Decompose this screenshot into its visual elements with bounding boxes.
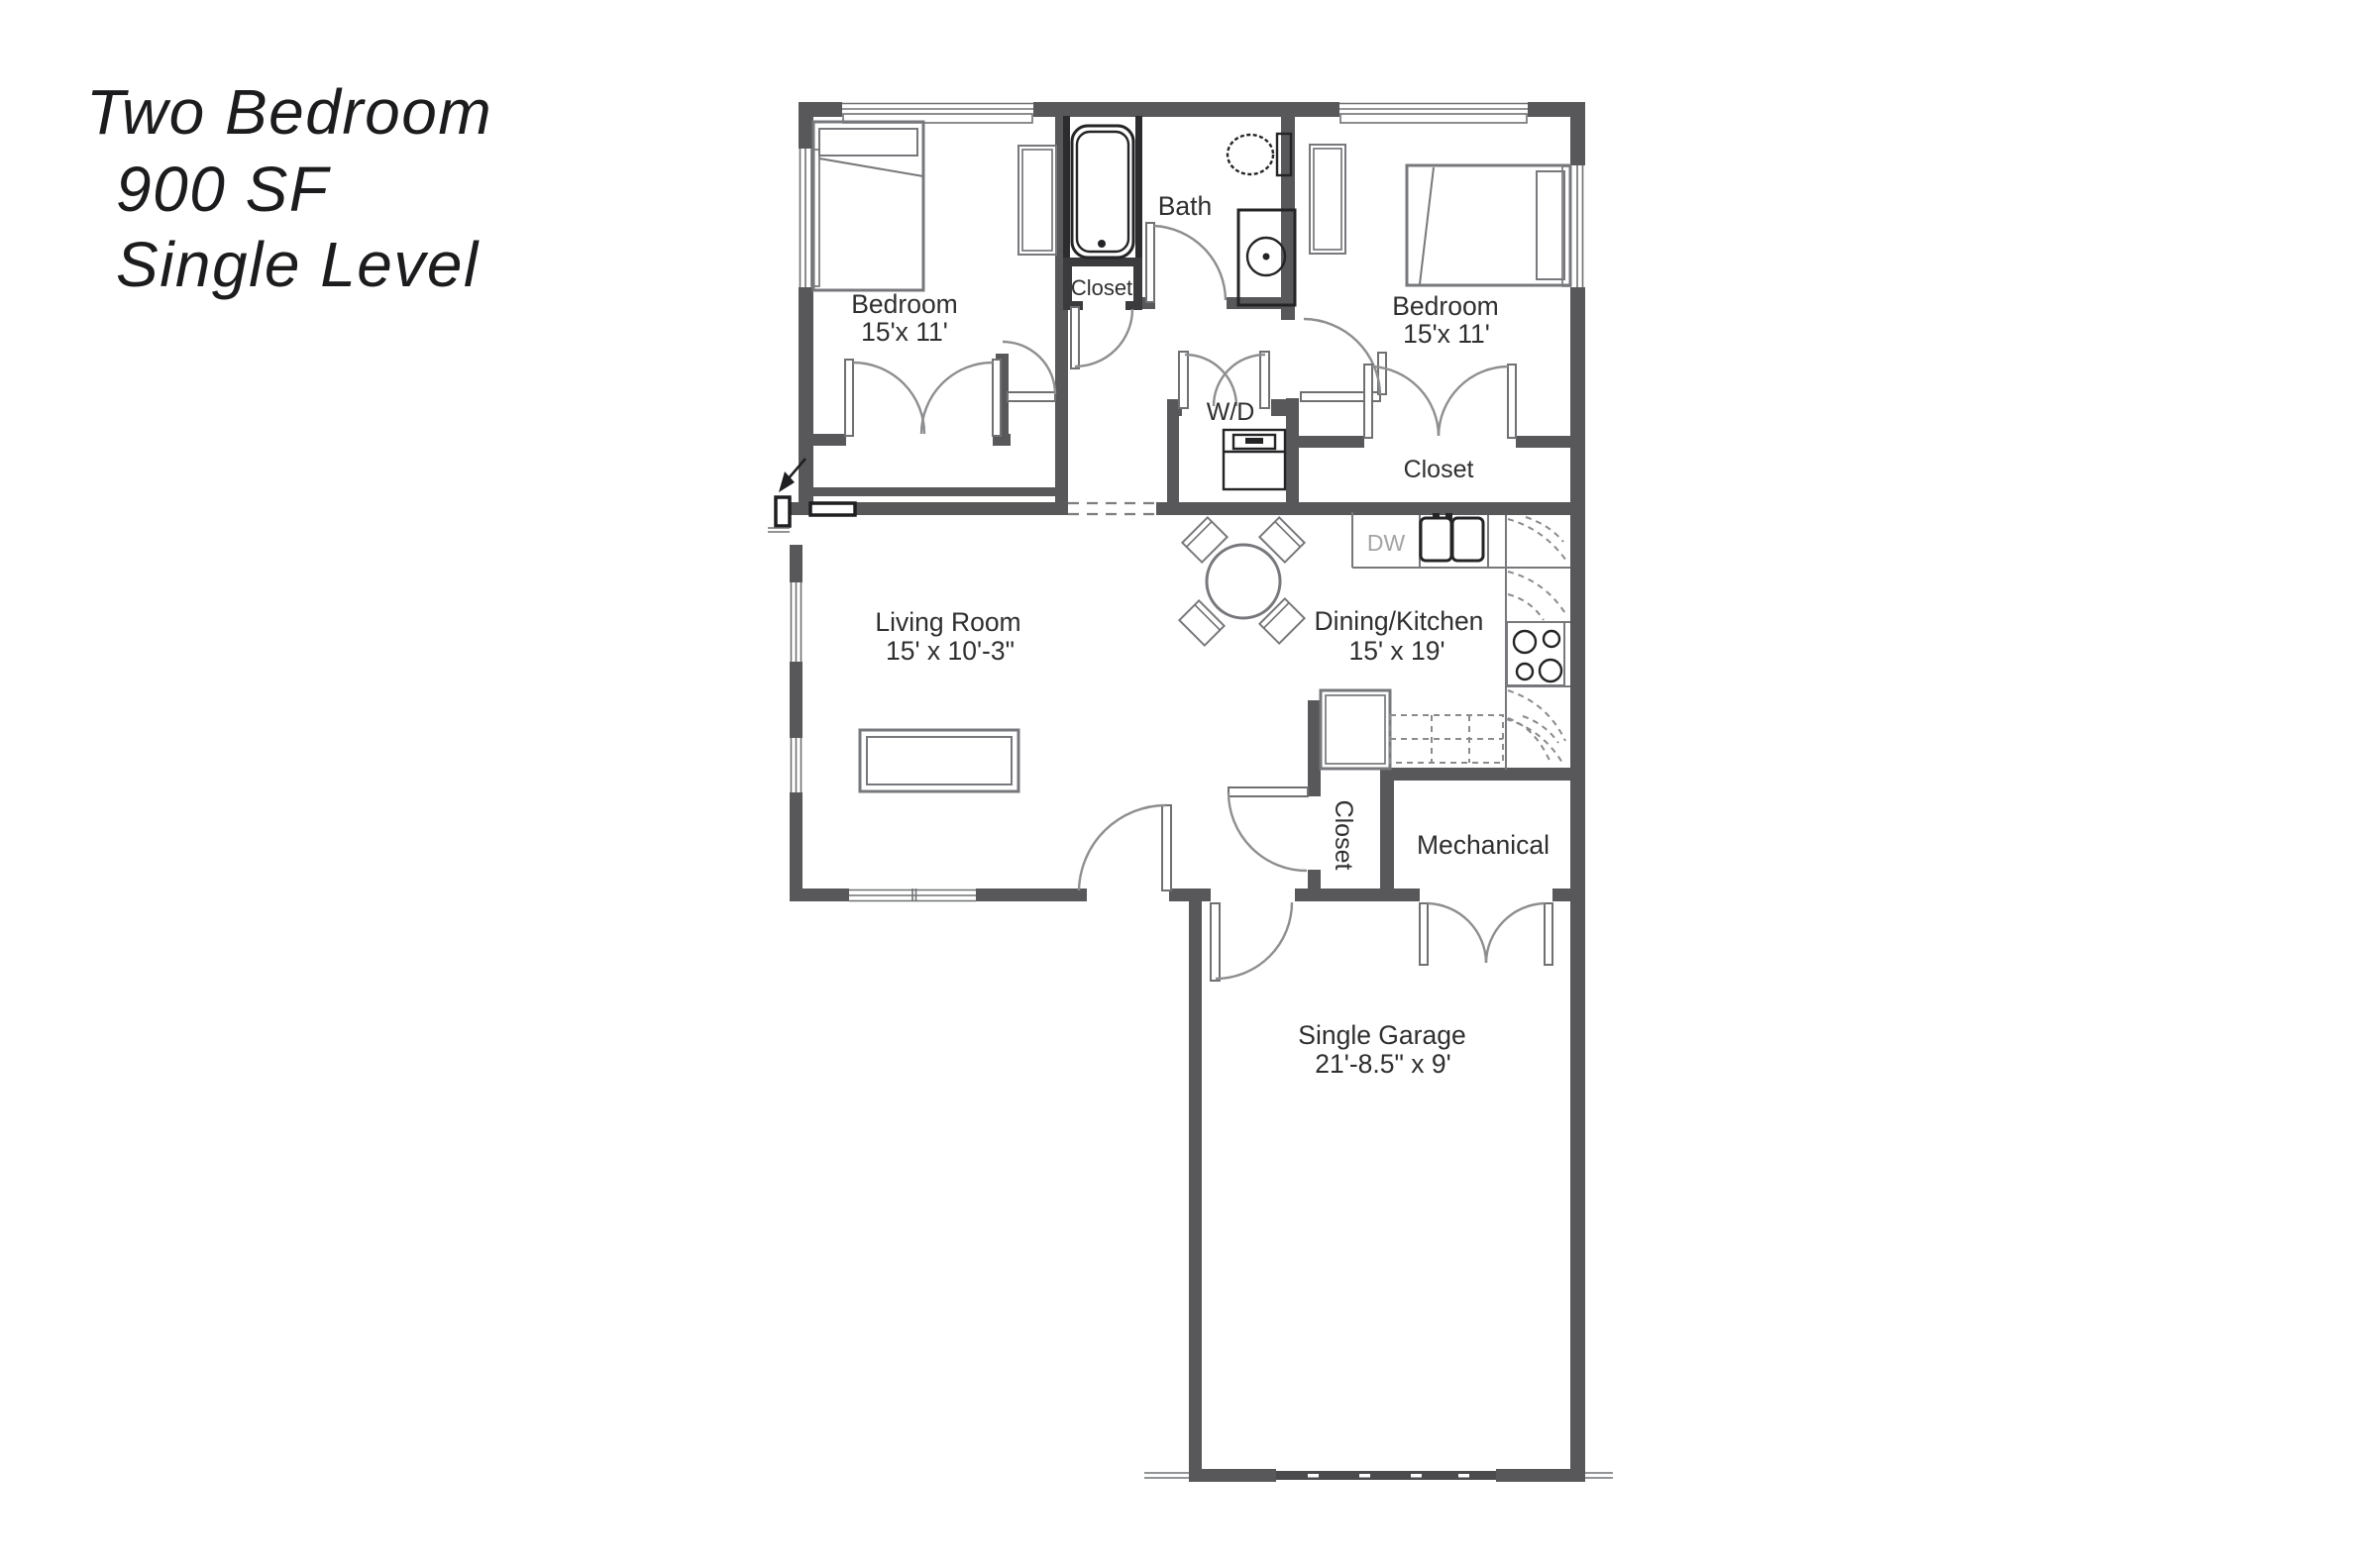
label-living-room-name: Living Room	[875, 607, 1020, 637]
window-living-bottom	[849, 889, 976, 901]
door-bedroom-left-entry	[1003, 342, 1055, 401]
window-bedroom-right-top	[1339, 102, 1528, 123]
bed-right	[1407, 165, 1570, 285]
corner-cabinet-upper	[1508, 572, 1566, 620]
hall-opening-dashes	[1068, 503, 1156, 514]
label-living-room-dims: 15' x 10'-3"	[886, 636, 1015, 666]
pantry-cabinet	[1321, 690, 1390, 769]
label-bedroom-right-closet: Closet	[1404, 456, 1474, 483]
door-garage-entry	[1211, 902, 1292, 981]
door-bedroom-left-closet	[845, 360, 1001, 436]
label-bedroom-left-name: Bedroom	[851, 289, 958, 319]
door-mechanical-double	[1420, 903, 1552, 965]
dresser-left	[1018, 146, 1056, 255]
label-garage-name: Single Garage	[1298, 1020, 1465, 1050]
floor-plan: Two Bedroom 900 SF Single Level Bedroom …	[0, 0, 2353, 1568]
label-entry-closet: Closet	[1330, 800, 1357, 871]
bed-left	[813, 122, 923, 290]
label-laundry: W/D	[1207, 398, 1255, 426]
window-living-left-1	[790, 582, 802, 662]
label-hall-closet: Closet	[1071, 275, 1132, 300]
floor-plan-page: Two Bedroom 900 SF Single Level Bedroom …	[0, 0, 2353, 1568]
plan-title-line1: Two Bedroom	[86, 76, 492, 148]
label-dishwasher: DW	[1367, 530, 1406, 556]
plan-title-line2: 900 SF	[116, 154, 332, 225]
corner-cabinet-lower	[1508, 690, 1565, 763]
label-bath: Bath	[1158, 191, 1213, 221]
bathtub	[1072, 126, 1133, 258]
label-dining-kitchen-name: Dining/Kitchen	[1315, 606, 1484, 636]
dining-table-set	[1179, 517, 1304, 645]
label-garage-dims: 21'-8.5" x 9'	[1315, 1049, 1450, 1079]
refrigerator	[1508, 517, 1566, 561]
window-bedroom-right-side	[1562, 165, 1585, 287]
door-bath	[1146, 223, 1226, 302]
plan-title-line3: Single Level	[116, 229, 480, 300]
label-bedroom-left-dims: 15'x 11'	[861, 317, 948, 347]
door-entry-closet	[1229, 787, 1308, 871]
door-bedroom-right-entry	[1301, 319, 1386, 401]
door-living-front	[1079, 805, 1171, 890]
dresser-right	[1310, 145, 1345, 254]
stove	[1507, 622, 1564, 685]
window-bedroom-left-side	[799, 149, 819, 287]
washer-dryer-unit	[1224, 430, 1285, 489]
label-bedroom-right-dims: 15'x 11'	[1403, 319, 1490, 349]
label-mechanical: Mechanical	[1417, 830, 1550, 860]
windows	[790, 102, 1585, 901]
kitchen-sink	[1421, 513, 1483, 561]
label-dining-kitchen-dims: 15' x 19'	[1348, 636, 1444, 666]
window-bedroom-left-top	[842, 102, 1033, 123]
sofa	[860, 730, 1018, 791]
window-living-left-2	[790, 738, 802, 792]
door-hall-closet	[1071, 307, 1132, 368]
label-bedroom-right-name: Bedroom	[1392, 291, 1499, 321]
